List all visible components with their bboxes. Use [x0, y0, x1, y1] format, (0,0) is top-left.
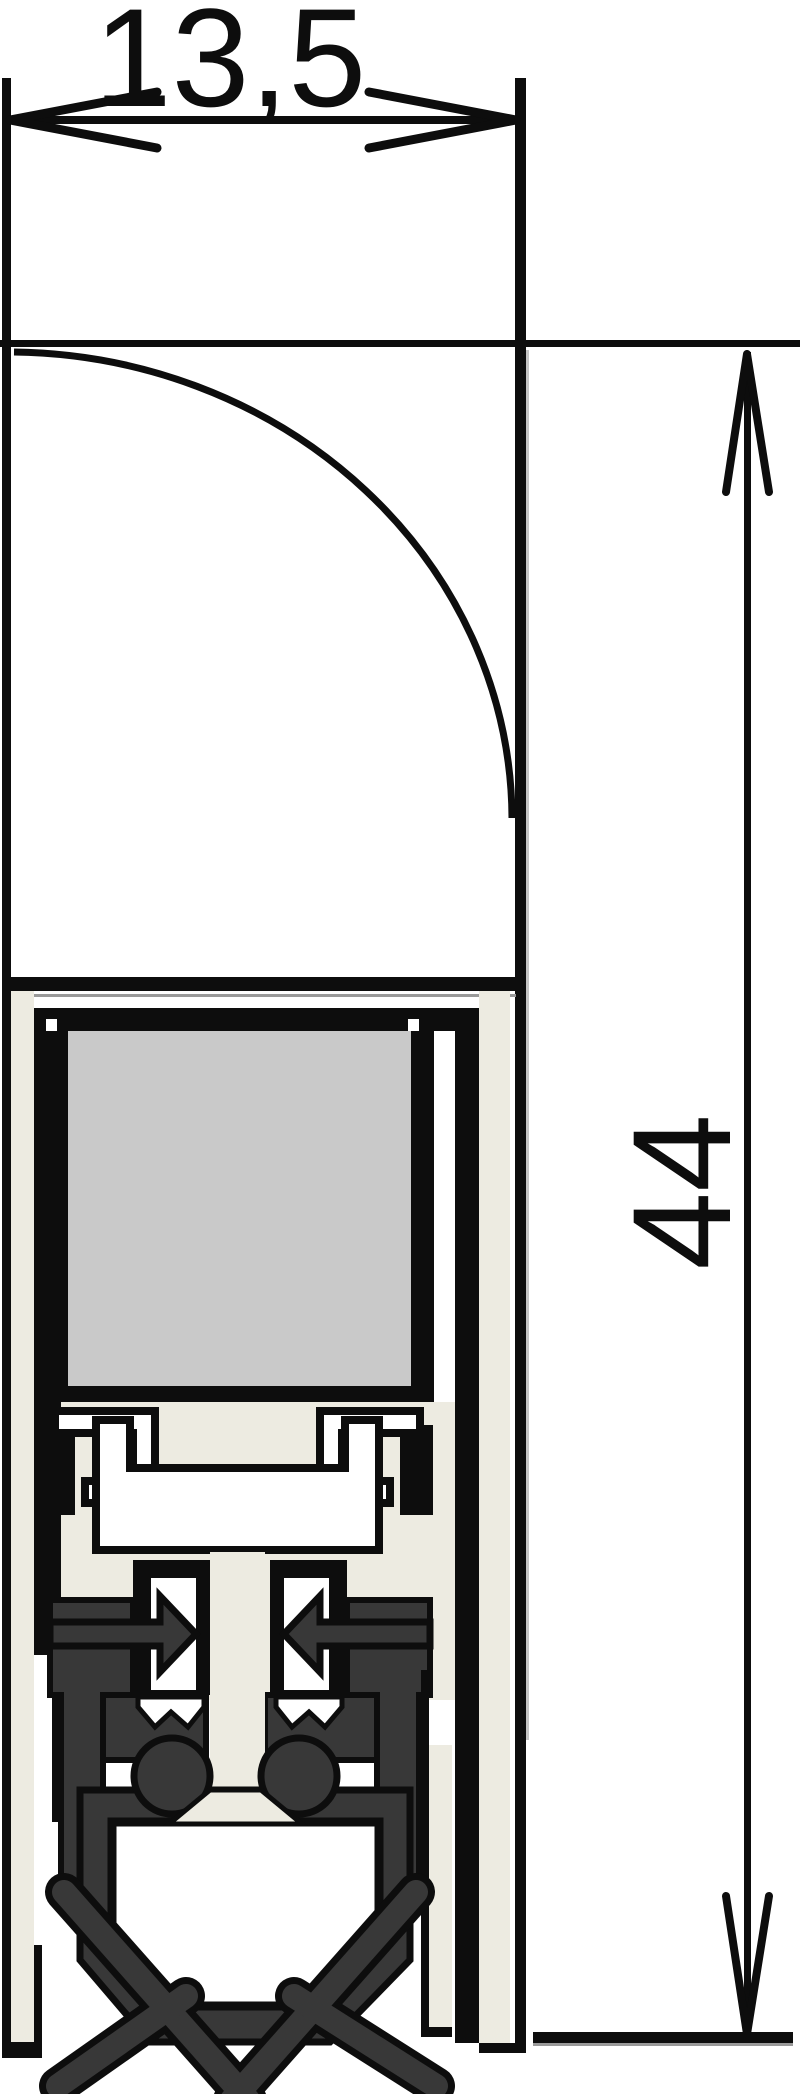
right-line-shadow — [526, 350, 529, 1740]
groove-line-shadow — [11, 994, 516, 997]
housing-wall-left-foot — [34, 1945, 42, 2050]
rubber-stem — [210, 1552, 265, 1815]
profile-cross-section-drawing: 13,5 44 — [0, 0, 800, 2094]
extension-line-left — [2, 78, 11, 2058]
bottom-line-shadow — [533, 2043, 793, 2046]
groove-bottom-line — [2, 977, 521, 991]
right-side-strip — [479, 991, 510, 2051]
housing-notch-right — [408, 1019, 419, 1031]
housing-wall-right — [455, 1008, 479, 2043]
width-dimension-label: 13,5 — [94, 0, 366, 136]
technical-drawing-page: 13,5 44 — [0, 0, 800, 2094]
height-dimension-label: 44 — [603, 1114, 760, 1270]
foam-insert — [68, 1031, 411, 1386]
hook-surround-left — [42, 1425, 75, 1515]
left-side-strip — [11, 991, 34, 2051]
housing-notch-left — [46, 1019, 57, 1031]
bottom-reference-line — [533, 2032, 793, 2043]
door-bottom-reference-line — [0, 340, 800, 347]
inner-bar-cap — [421, 2027, 452, 2037]
hook-surround-right — [400, 1425, 433, 1515]
right-strip-end-cap — [479, 2043, 523, 2053]
inner-bar-edge — [421, 1670, 429, 2029]
insert-right-gap — [434, 1031, 455, 1402]
extension-line-right — [515, 78, 526, 2053]
